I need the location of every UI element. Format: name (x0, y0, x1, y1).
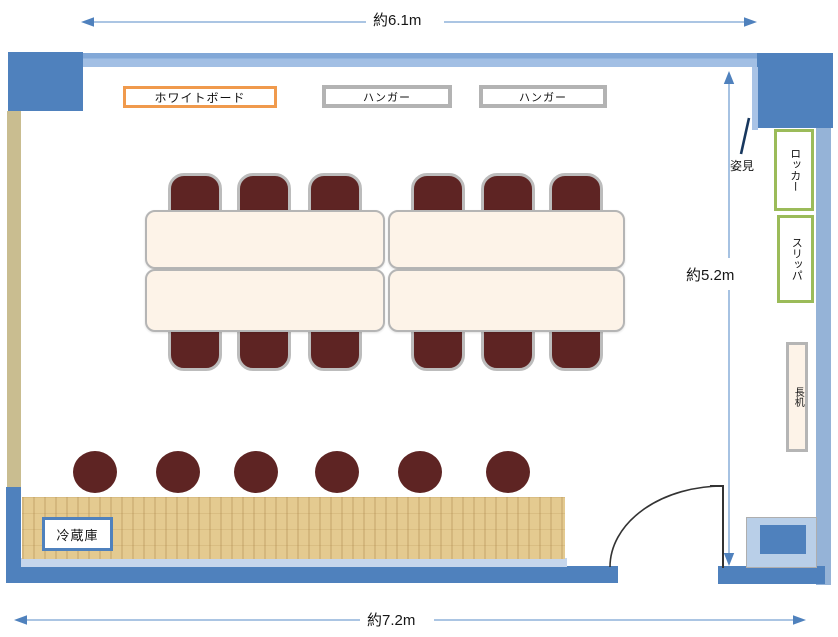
hanger-left: ハンガー (322, 85, 452, 108)
meeting-table (145, 210, 385, 269)
mirror-label: 姿見 (730, 157, 754, 174)
door (610, 486, 724, 568)
wall-bottom-left (6, 566, 618, 583)
hanger-left-label: ハンガー (363, 89, 411, 105)
refrigerator: 冷蔵庫 (42, 517, 113, 551)
wall-bottom-right (718, 566, 825, 584)
stool (398, 451, 442, 493)
dimension-top-width: 約6.1m (370, 9, 424, 30)
slippers: スリッパ (777, 215, 814, 303)
wall-right (816, 128, 831, 585)
meeting-table (388, 210, 625, 269)
wall-baseboard (21, 558, 567, 567)
stool (156, 451, 200, 493)
wall-corner-top-right (757, 53, 833, 128)
wall-strip-top-right (752, 67, 758, 130)
dimension-arrow-right (724, 71, 734, 566)
slippers-label: スリッパ (790, 237, 802, 281)
whiteboard: ホワイトボード (123, 86, 277, 108)
refrigerator-label: 冷蔵庫 (56, 525, 98, 544)
stool (486, 451, 530, 493)
stool (73, 451, 117, 493)
long-desk: 長机 (786, 342, 808, 452)
wall-corner-top-left (8, 52, 83, 111)
stool (315, 451, 359, 493)
wall-top (8, 53, 757, 67)
dimension-right-height: 約5.2m (683, 264, 737, 285)
locker-label: ロッカー (788, 148, 800, 192)
locker: ロッカー (774, 129, 814, 211)
dimension-bottom-width: 約7.2m (364, 609, 418, 630)
sink-unit-basin (760, 525, 806, 554)
long-desk-label: 長机 (792, 387, 803, 407)
hanger-right-label: ハンガー (519, 89, 567, 105)
mirror-line (741, 118, 749, 154)
stool (234, 451, 278, 493)
wall-left-tan (7, 111, 21, 489)
hanger-right: ハンガー (479, 85, 607, 108)
whiteboard-label: ホワイトボード (154, 89, 245, 106)
floor-plan: ホワイトボード ハンガー ハンガー 姿見 ロッカー スリッパ 長机 冷蔵庫 約6 (0, 0, 838, 637)
meeting-table (388, 269, 625, 332)
meeting-table (145, 269, 385, 332)
